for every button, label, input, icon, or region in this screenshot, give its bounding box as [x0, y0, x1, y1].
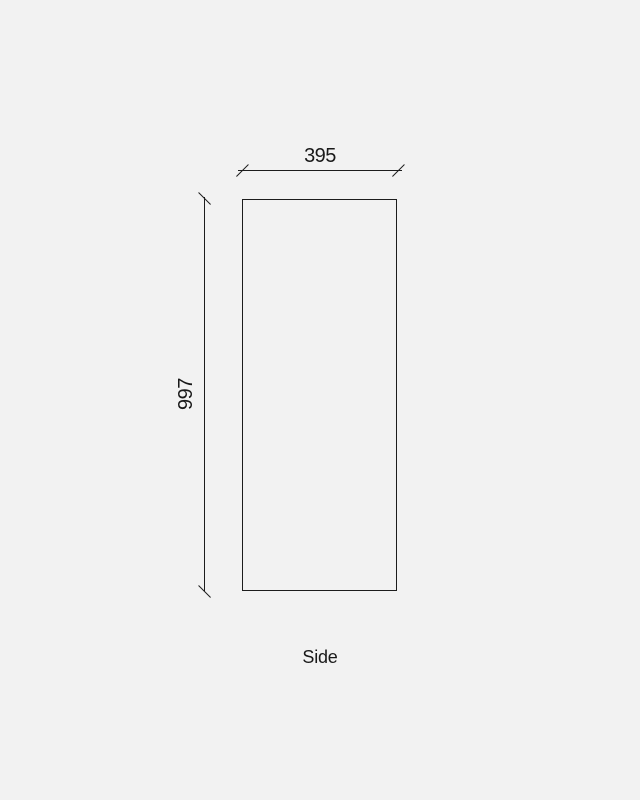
panel-outline-rect [242, 199, 397, 591]
height-dimension-label: 997 [176, 378, 196, 410]
height-dimension-line [204, 197, 205, 591]
width-dimension-label: 395 [304, 146, 336, 166]
width-dimension-line [238, 170, 402, 171]
view-caption: Side [302, 648, 337, 666]
technical-drawing-canvas: 395 997 Side [0, 0, 640, 800]
